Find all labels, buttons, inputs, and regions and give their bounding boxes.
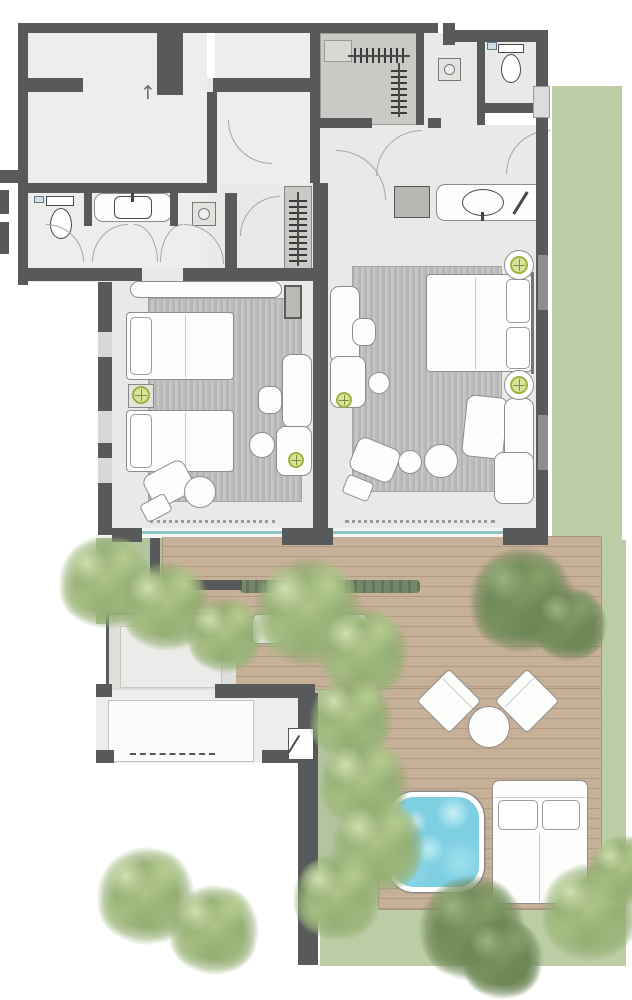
entry-arrow: ↑ bbox=[140, 84, 156, 103]
wall bbox=[96, 684, 112, 697]
pillow bbox=[130, 414, 152, 468]
wall-patch bbox=[538, 255, 548, 310]
tv-panel bbox=[284, 285, 302, 319]
bed-seam bbox=[185, 315, 186, 377]
storage-cube bbox=[394, 186, 430, 218]
floor-plan: ↑ bbox=[0, 0, 632, 1000]
wall-bathroom-top bbox=[18, 183, 217, 193]
wall bbox=[310, 33, 320, 183]
rail-bar bbox=[348, 55, 410, 57]
wall bbox=[448, 30, 548, 42]
side-table-round bbox=[424, 444, 458, 478]
corner-sofa-chaise bbox=[461, 394, 509, 460]
wall bbox=[18, 23, 168, 33]
bed-seam bbox=[475, 277, 476, 369]
toilet-icon bbox=[501, 54, 521, 83]
table-lamp-icon bbox=[288, 452, 304, 468]
headboard bbox=[531, 272, 534, 374]
tap-icon bbox=[131, 193, 134, 202]
palm-tree bbox=[168, 884, 260, 976]
curtain bbox=[345, 520, 495, 523]
window-pier bbox=[98, 443, 112, 458]
wall-stub bbox=[0, 170, 18, 183]
wall-stub bbox=[0, 222, 9, 254]
luggage-bench bbox=[324, 40, 352, 62]
daybed-pillow bbox=[498, 800, 538, 830]
rail-bar bbox=[398, 63, 400, 117]
hand-towel-icon bbox=[34, 196, 44, 203]
side-table-round bbox=[468, 706, 510, 748]
wall-patch bbox=[538, 415, 548, 470]
corner-sofa-seat bbox=[494, 452, 534, 504]
hand-basin-icon bbox=[487, 42, 497, 50]
wall bbox=[282, 528, 333, 545]
wall bbox=[213, 78, 317, 92]
daybed-seam bbox=[539, 833, 540, 901]
desk bbox=[282, 354, 312, 428]
sliding-glass-door bbox=[142, 531, 282, 534]
wall bbox=[183, 268, 320, 281]
lower-unit-door bbox=[130, 753, 215, 755]
pillow bbox=[506, 327, 530, 369]
daybed-pillow bbox=[542, 800, 580, 830]
console bbox=[276, 426, 312, 476]
lawn-east bbox=[552, 86, 622, 540]
side-table-round bbox=[184, 476, 216, 508]
rail-bar bbox=[297, 192, 299, 266]
wall-stub bbox=[0, 190, 9, 214]
wall bbox=[477, 33, 485, 125]
desk-chair bbox=[258, 386, 282, 414]
wall bbox=[503, 528, 536, 545]
table-lamp-icon bbox=[336, 392, 352, 408]
tree bbox=[460, 916, 544, 1000]
wall-bedroom-divider bbox=[313, 183, 328, 535]
round-stool bbox=[368, 372, 390, 394]
wall bbox=[170, 193, 178, 226]
wall bbox=[428, 118, 441, 128]
window-pier bbox=[98, 357, 112, 411]
wall bbox=[485, 103, 540, 113]
toilet-cistern bbox=[46, 196, 74, 206]
shower-drain-center bbox=[198, 208, 210, 220]
daybed-seam bbox=[495, 797, 585, 798]
headboard-bench bbox=[130, 281, 282, 298]
table-lamp-icon bbox=[510, 376, 528, 394]
toilet-cistern bbox=[498, 44, 524, 53]
wall bbox=[96, 750, 114, 763]
tap-icon bbox=[481, 212, 484, 221]
table-lamp-icon bbox=[132, 386, 150, 404]
pillow bbox=[506, 279, 530, 323]
desk-chair bbox=[352, 318, 376, 346]
wall bbox=[416, 33, 424, 125]
sliding-glass-door bbox=[333, 531, 503, 534]
wall-west-outer bbox=[18, 23, 28, 285]
wall bbox=[157, 23, 183, 95]
wall bbox=[18, 268, 142, 281]
window-pier bbox=[98, 282, 112, 332]
side-table-round bbox=[249, 432, 275, 458]
wall-niche bbox=[533, 86, 550, 118]
pillow bbox=[130, 317, 152, 375]
curtain bbox=[150, 520, 275, 523]
window-pier bbox=[98, 483, 112, 535]
bed-seam bbox=[185, 413, 186, 469]
wall bbox=[320, 118, 372, 128]
wall bbox=[207, 92, 217, 193]
shower-drain-center bbox=[444, 64, 455, 75]
tree bbox=[532, 586, 608, 662]
table-lamp-icon bbox=[510, 256, 528, 274]
side-table-round bbox=[398, 450, 422, 474]
wall bbox=[84, 193, 92, 226]
wall bbox=[225, 193, 237, 278]
palm-tree bbox=[292, 852, 382, 942]
wall bbox=[18, 78, 83, 92]
wall bbox=[176, 23, 438, 33]
